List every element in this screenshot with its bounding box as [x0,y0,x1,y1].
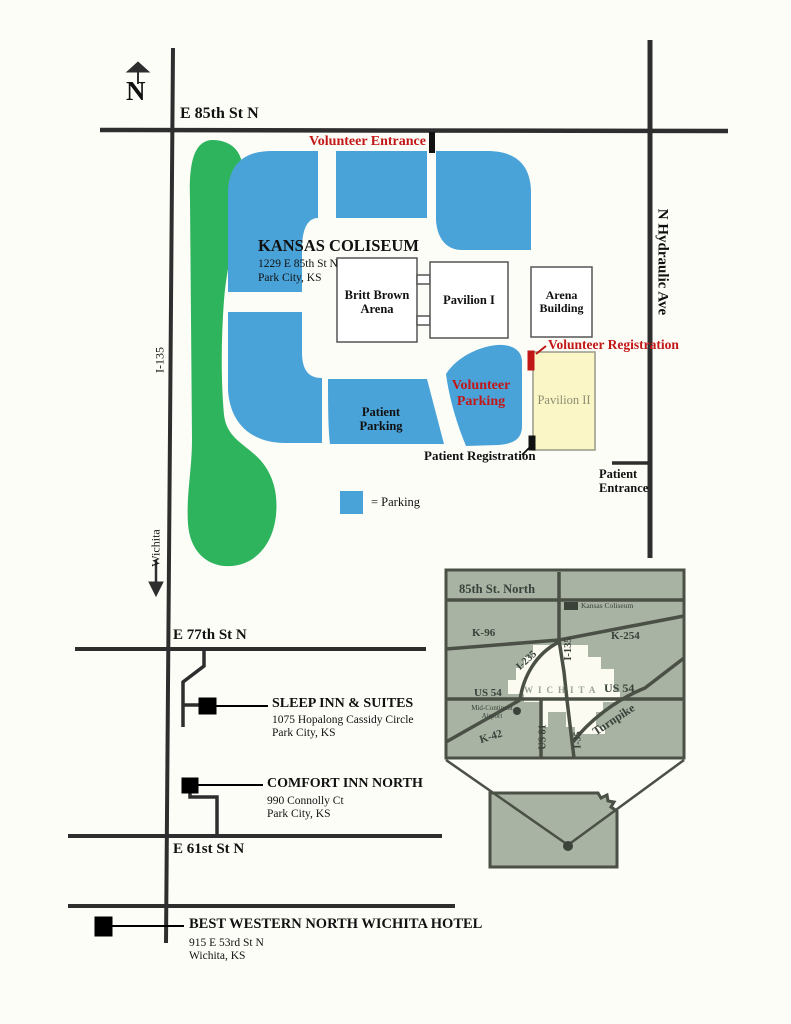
street-label-e85th: E 85th St N [180,105,259,123]
best-western-address2: Wichita, KS [189,950,245,963]
legend-parking-swatch [340,491,363,514]
volunteer-entrance-tick [429,132,435,153]
venue-name: KANSAS COLISEUM [258,237,419,255]
parking-top-middle [336,151,427,218]
sleep-inn-address2: Park City, KS [272,727,335,740]
inset-85th-label: 85th St. North [459,582,535,596]
inset-wichita-label: WICHITA [524,685,600,695]
sleep-inn-address1: 1075 Hopalong Cassidy Circle [272,714,414,727]
sleep-inn-name: SLEEP INN & SUITES [272,696,413,712]
inset-airport-label: Mid-Continent Airport [468,705,516,721]
comfort-inn-address2: Park City, KS [267,808,330,821]
britt-brown-label: Britt Brown Arena [337,288,417,316]
pavilion2-label: Pavilion II [533,393,595,407]
inset-i35-label: I-35 [572,731,583,748]
best-western-address1: 915 E 53rd St N [189,937,264,950]
volunteer-registration-label: Volunteer Registration [548,337,679,352]
pavilion1-label: Pavilion I [430,293,508,307]
parking-left-bottom [228,312,322,443]
inset-coliseum-label: Kansas Coliseum [581,602,633,610]
connector-1 [417,275,430,284]
road-comfort-inn-access [190,793,217,834]
arena-building-label: Arena Building [531,289,592,316]
wichita-location-dot [563,841,573,851]
road-sleep-inn-access [183,651,204,727]
best-western-marker [95,917,112,936]
coliseum-directions-map: N E 85th St N Volunteer Entrance N Hydra… [0,0,791,1024]
road-i135 [166,48,173,943]
hotel-markers [95,698,268,936]
patient-parking-label: Patient Parking [352,405,410,433]
compass-label: N [126,76,146,106]
inset-k96-label: K-96 [472,627,495,639]
patient-entrance-label: Patient Entrance [599,467,648,495]
patient-registration-label: Patient Registration [424,449,536,464]
wichita-direction-label: Wichita [149,529,162,567]
highway-label-i135: I-135 [153,347,166,373]
street-label-e77th: E 77th St N [173,627,247,644]
sleep-inn-marker [199,698,216,714]
volunteer-parking-label: Volunteer Parking [445,378,517,409]
inset-coliseum-marker [564,602,578,610]
inset-map [446,570,684,758]
volunteer-entrance-label: Volunteer Entrance [306,134,426,150]
best-western-name: BEST WESTERN NORTH WICHITA HOTEL [189,916,482,932]
street-label-e61st: E 61st St N [173,841,244,858]
inset-us54-left-label: US 54 [474,687,502,699]
inset-k254-label: K-254 [611,630,640,642]
inset-us54-right-label: US 54 [604,682,634,695]
comfort-inn-marker [182,778,198,793]
legend-parking-label: = Parking [371,495,420,509]
inset-i135-label: I-135 [563,637,575,660]
kansas-state-locator [446,760,684,867]
street-label-n-hydraulic: N Hydraulic Ave [654,209,671,315]
venue-address2: Park City, KS [258,272,321,285]
map-graphics [0,0,791,1024]
inset-us81-label: US 81 [537,724,548,749]
venue-address1: 1229 E 85th St N [258,258,338,271]
comfort-inn-name: COMFORT INN NORTH [267,776,423,792]
parking-top-right [436,151,531,250]
connector-2 [417,316,430,325]
road-e85th [100,130,728,131]
comfort-inn-address1: 990 Connolly Ct [267,795,344,808]
